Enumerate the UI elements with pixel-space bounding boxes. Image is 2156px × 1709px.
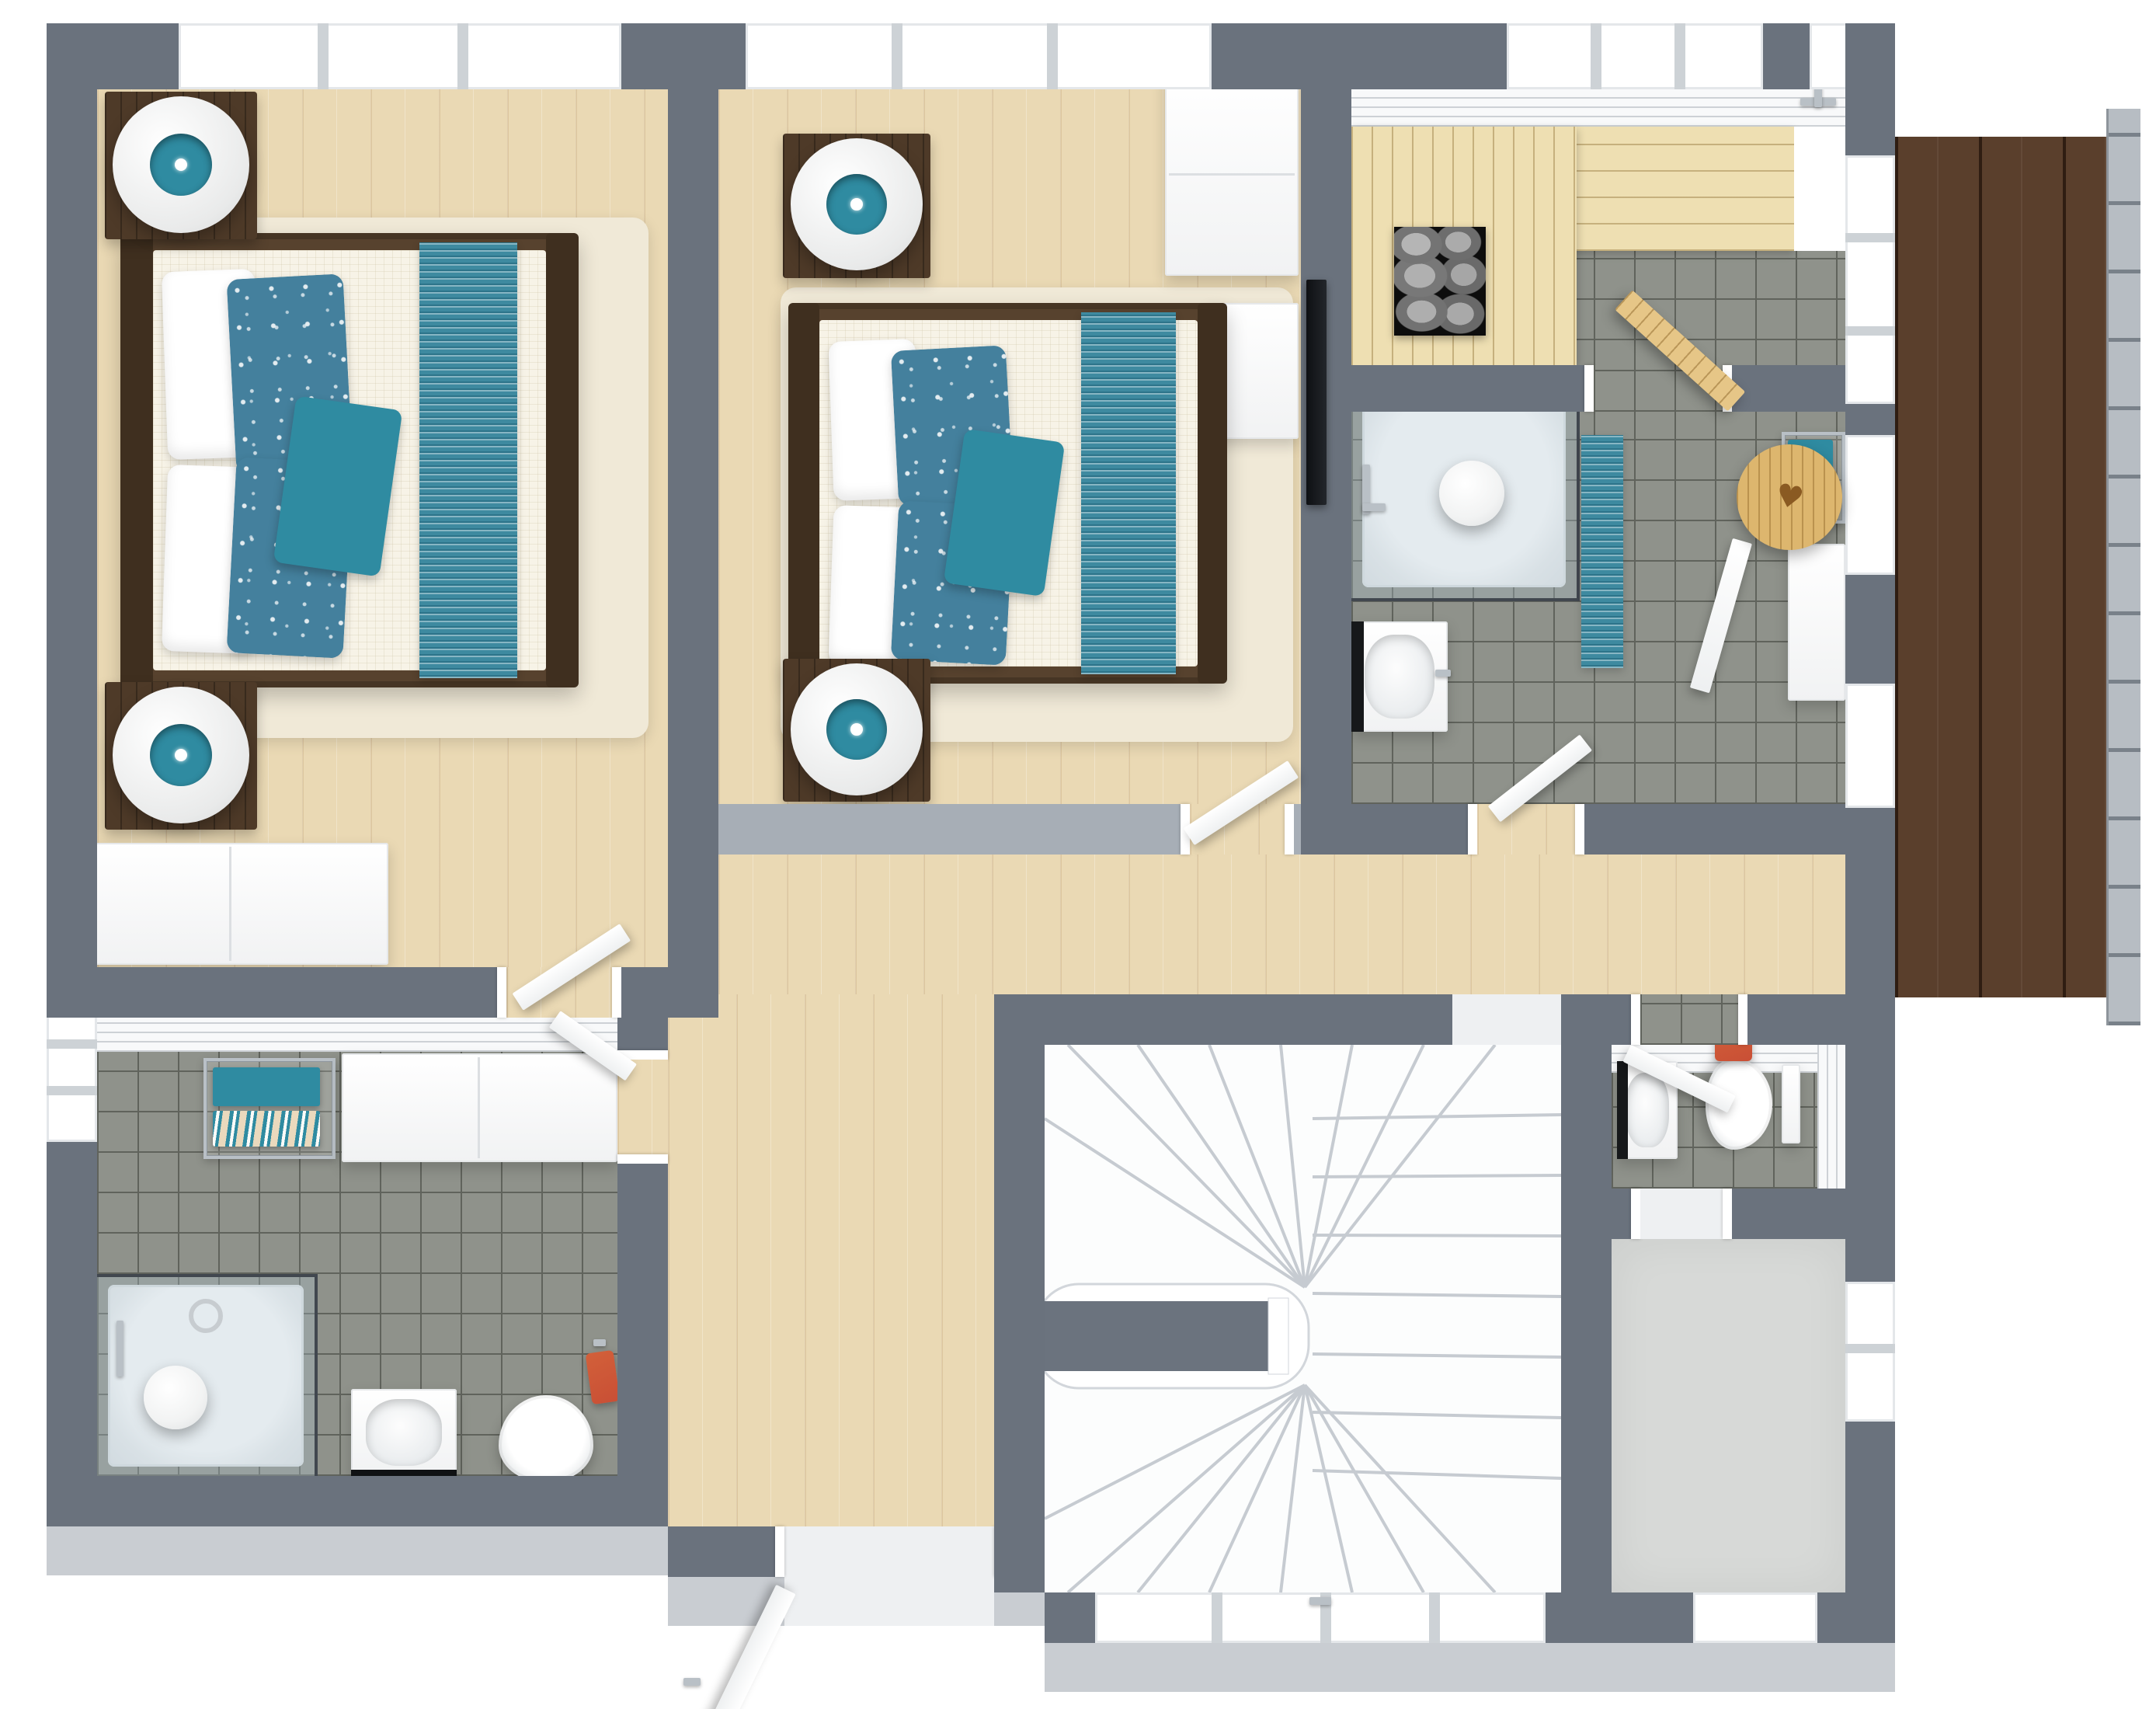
entry-door-handle: [683, 1678, 701, 1686]
lamp-2a: [791, 138, 923, 270]
balcony-edge-top: [1895, 117, 2109, 137]
wall-bedroom1-bottom-a: [47, 967, 497, 1018]
door-jamb: [612, 967, 621, 1018]
window-bedroom-2: [746, 23, 1212, 89]
wall-bedroom1-right: [668, 23, 718, 1018]
lamp-1a: [113, 96, 249, 233]
window-mullion: [47, 1039, 97, 1049]
door-jamb: [1723, 1189, 1732, 1239]
washbasin-top: [1351, 621, 1448, 732]
wardrobe-seam: [1169, 173, 1295, 176]
bed-2-accent-cushion: [944, 429, 1066, 597]
lamp-shade-opening: [826, 699, 887, 760]
shower-light-left: [144, 1366, 207, 1429]
window-mullion: [1047, 23, 1058, 89]
wall-outer-bottom-left: [47, 1526, 668, 1575]
sauna-corner-white: [1794, 127, 1845, 251]
wall-top-d: [1763, 23, 1810, 89]
door-jamb: [1584, 365, 1594, 412]
wall-wc-bottom-b: [1732, 1189, 1845, 1239]
wall-wc-bottom-a: [1612, 1189, 1631, 1239]
window-bedroom-1: [179, 23, 621, 89]
washbasin-top-counter-edge: [1351, 621, 1364, 732]
storage-door-opening: [1640, 1189, 1723, 1239]
wall-sauna-south-b: [1732, 365, 1845, 412]
window-mullion: [1591, 23, 1601, 89]
lamp-1b: [113, 687, 249, 823]
counter-seam: [478, 1057, 480, 1158]
window-mullion: [1212, 1592, 1222, 1643]
lamp-shade-opening: [150, 134, 213, 197]
window-right-2: [1845, 435, 1895, 575]
storage-floor: [1612, 1239, 1845, 1592]
window-mullion: [1845, 1344, 1895, 1353]
wc-washbasin-edge: [1617, 1061, 1628, 1159]
door-jamb: [1738, 994, 1747, 1045]
lamp-2b: [791, 663, 923, 795]
stool-heart-cutout: ♥: [1772, 477, 1807, 517]
dresser-seam: [229, 847, 231, 961]
door-jamb: [1285, 804, 1294, 854]
entry-door-threshold: [784, 1526, 994, 1626]
wall-left: [47, 23, 97, 1526]
wall-bathroom-top-bottom-b: [1584, 804, 1845, 854]
wall-hall-bottom-c: [1747, 994, 1845, 1045]
lamp-shade-opening: [150, 724, 213, 787]
balcony-deck: [1895, 117, 2140, 1018]
window-mullion: [47, 1086, 97, 1095]
wc-door-opening: [1640, 994, 1738, 1045]
lamp-shade-opening: [826, 174, 887, 235]
window-handle: [1309, 1597, 1331, 1605]
staircase-entry: [1452, 994, 1561, 1045]
wall-hall-bottom-b: [1561, 994, 1631, 1045]
wall-hall-bottom-a: [1045, 994, 1452, 1045]
window-right-3: [1845, 684, 1895, 808]
bed-1-footboard: [546, 233, 579, 687]
window-storage-bottom: [1693, 1592, 1817, 1643]
wall-top-c: [1212, 23, 1507, 89]
window-right-1: [1845, 155, 1895, 404]
tv: [1306, 280, 1327, 505]
staircase: [1045, 1045, 1561, 1592]
lamp-bulb: [175, 749, 187, 761]
bed-1-headboard: [120, 233, 153, 687]
window-sauna: [1507, 23, 1763, 89]
wooden-stool: ♥: [1737, 444, 1842, 550]
wc-wall-paneling: [1817, 1045, 1845, 1189]
bed-2-footboard: [1198, 303, 1227, 684]
patterned-towel-left: [213, 1111, 320, 1147]
sauna-heater: [1394, 227, 1486, 336]
balcony-edge-bottom: [1895, 997, 2109, 1018]
shower-handle: [1362, 503, 1386, 511]
window-mullion: [892, 23, 902, 89]
lamp-bulb: [850, 198, 863, 211]
floor-plan-canvas: ♥: [0, 0, 2156, 1709]
lamp-bulb: [175, 158, 187, 171]
window-mullion: [457, 23, 468, 89]
door-jamb: [1575, 804, 1584, 854]
teal-towel-left: [213, 1067, 320, 1106]
wall-bathroom-top-bottom-a: [1351, 804, 1468, 854]
wall-staircase-right: [1561, 1045, 1612, 1592]
wall-bedroom1-bottom-b: [621, 967, 668, 1018]
door-jamb: [1631, 1189, 1640, 1239]
bed-2-runner: [1081, 312, 1176, 674]
door-jamb: [617, 1154, 668, 1164]
bathroom-left-washbasin: [351, 1389, 457, 1476]
basin: [1365, 635, 1434, 719]
lamp-bulb: [850, 723, 863, 736]
red-towel-hook: [593, 1339, 606, 1346]
door-jamb: [1631, 994, 1640, 1045]
hallway-floor-upper: [718, 854, 1845, 994]
wall-bathroom-left-right-a: [617, 1018, 668, 1050]
wall-bedroom2-bottom-b: [1294, 804, 1301, 854]
window-mullion: [1845, 326, 1895, 336]
sauna-wall-paneling: [1351, 89, 1845, 127]
bathroom-left-paneling: [97, 1018, 617, 1052]
wall-bathroom-left-right-b: [617, 1164, 668, 1476]
bed-1-runner: [419, 242, 517, 678]
door-jamb: [1468, 804, 1477, 854]
shower-light-top: [1439, 461, 1504, 526]
wall-outer-bottom-right: [1045, 1643, 1895, 1692]
hallway-floor-lower: [668, 994, 994, 1526]
basin: [366, 1399, 442, 1465]
shower-drain: [189, 1299, 223, 1333]
wall-bedroom2-bottom-a: [718, 804, 1181, 854]
faucet: [1435, 670, 1451, 677]
basin: [1626, 1073, 1669, 1147]
window-mullion: [318, 23, 329, 89]
wall-staircase-left: [994, 994, 1045, 1592]
wall-bottom-left: [47, 1476, 668, 1526]
door-jamb: [497, 967, 506, 1018]
window-mullion: [1429, 1592, 1440, 1643]
bed-2-headboard: [788, 303, 819, 684]
wc-cistern: [1782, 1064, 1800, 1143]
wall-sauna-south-a: [1351, 365, 1584, 412]
shower-rail: [116, 1321, 123, 1377]
window-mullion: [1845, 233, 1895, 242]
bath-mat-top: [1581, 435, 1623, 668]
vanity-top-right: [1788, 544, 1845, 701]
balcony-railing: [2106, 109, 2140, 1025]
window-mullion: [1674, 23, 1685, 89]
door-jamb: [775, 1526, 784, 1577]
